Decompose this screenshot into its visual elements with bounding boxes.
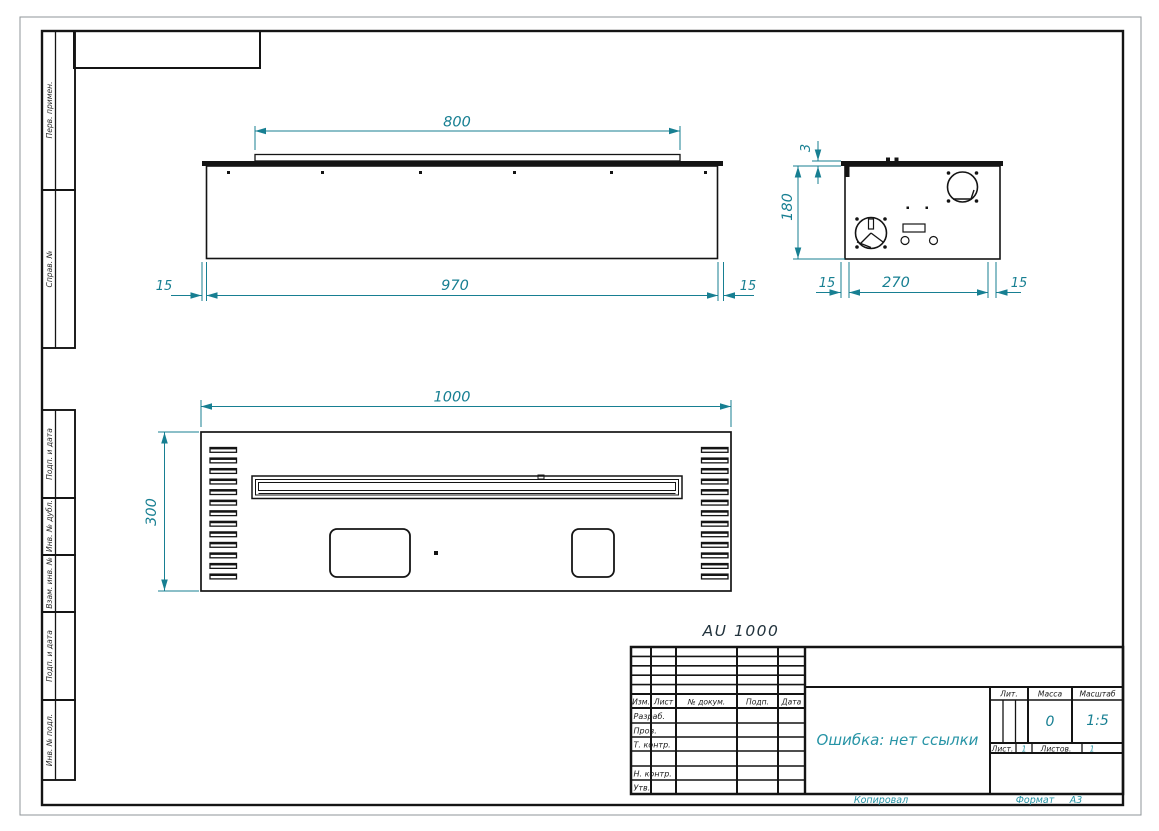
dim-15-left: 15 [819, 276, 836, 291]
vent-slot-edge [702, 479, 729, 481]
list-label: Лист. [991, 745, 1014, 754]
mounting-dot [419, 171, 422, 174]
margin-label: Перв. примен. [45, 81, 54, 138]
dim-1000: 1000 [434, 390, 471, 406]
dim-800: 800 [443, 115, 471, 131]
list-value: 1 [1022, 745, 1027, 754]
vent-slot-edge [702, 511, 729, 513]
row-tkontr: Т. контр. [634, 741, 671, 750]
vent-slot-edge [702, 469, 729, 471]
vent-slot-edge [210, 448, 237, 450]
vent-slot-edge [702, 553, 729, 555]
vent-slot-edge [702, 458, 729, 460]
vent-slot-edge [210, 542, 237, 544]
vent-slot-edge [210, 574, 237, 576]
mounting-dot [610, 171, 613, 174]
masshtab-label: Масштаб [1079, 690, 1115, 699]
vent-slot-edge [702, 521, 729, 523]
vent-slot-edge [702, 542, 729, 544]
kopiroval-label: Копировал [854, 795, 908, 806]
paper-edge [20, 17, 1141, 815]
vent-slot-edge [210, 564, 237, 566]
row-nkontr: Н. контр. [634, 770, 672, 779]
vent-slot-edge [702, 448, 729, 450]
model-label: AU 1000 [702, 622, 780, 640]
mounting-dot [321, 171, 324, 174]
row-utv: Утв. [634, 784, 651, 793]
vent-slot-edge [702, 574, 729, 576]
vent-slot-edge [210, 458, 237, 460]
col-list: Лист [653, 698, 674, 707]
vent-slot-edge [210, 521, 237, 523]
vent-slot-edge [702, 490, 729, 492]
dim-180: 180 [780, 193, 796, 221]
drawing-canvas: Перв. примен. Справ. № Подп. и дата Инв.… [0, 0, 1159, 831]
margin-label: Подп. и дата [45, 428, 54, 480]
col-data: Дата [781, 698, 802, 707]
drawing-sheet: Перв. примен. Справ. № Подп. и дата Инв.… [0, 0, 1159, 831]
lit-label: Лит. [999, 690, 1017, 699]
led-dot [434, 551, 438, 555]
margin-label: Инв. № дубл. [45, 500, 54, 552]
dim-3: 3 [799, 144, 814, 152]
dim-15-right: 15 [1011, 276, 1028, 291]
margin-label: Взам. инв. № [45, 557, 54, 609]
margin-label: Справ. № [45, 250, 54, 287]
row-razrab: Разраб. [634, 712, 665, 721]
col-podp: Подп. [746, 698, 769, 707]
margin-label: Подп. и дата [45, 630, 54, 682]
massa-label: Масса [1038, 690, 1063, 699]
vent-slot-edge [210, 532, 237, 534]
dim-15-right: 15 [740, 279, 757, 294]
listov-value: 1 [1090, 745, 1095, 754]
vent-slot-edge [210, 469, 237, 471]
mounting-dot [513, 171, 516, 174]
vent-slot-edge [210, 479, 237, 481]
dim-970: 970 [441, 278, 469, 294]
row-prov: Пров. [634, 727, 657, 736]
mounting-dot [704, 171, 707, 174]
margin-label: Инв. № подл. [45, 714, 54, 766]
format-label: Формат [1016, 795, 1055, 806]
dim-270: 270 [882, 275, 910, 291]
vent-slot-edge [702, 500, 729, 502]
listov-label: Листов. [1040, 745, 1072, 754]
vent-slot-edge [702, 564, 729, 566]
vent-slot-edge [702, 532, 729, 534]
dim-15-left: 15 [156, 279, 173, 294]
vent-slot-edge [210, 500, 237, 502]
format-value: А3 [1069, 795, 1083, 806]
massa-value: 0 [1046, 714, 1055, 730]
vent-slot-edge [210, 490, 237, 492]
col-dokum: № докум. [687, 698, 725, 707]
dim-300: 300 [144, 498, 160, 526]
col-izm: Изм. [632, 698, 650, 707]
document-name: Ошибка: нет ссылки [817, 731, 979, 749]
masshtab-value: 1:5 [1086, 713, 1109, 729]
vent-slot-edge [210, 511, 237, 513]
mounting-dot [227, 171, 230, 174]
vent-slot-edge [210, 553, 237, 555]
